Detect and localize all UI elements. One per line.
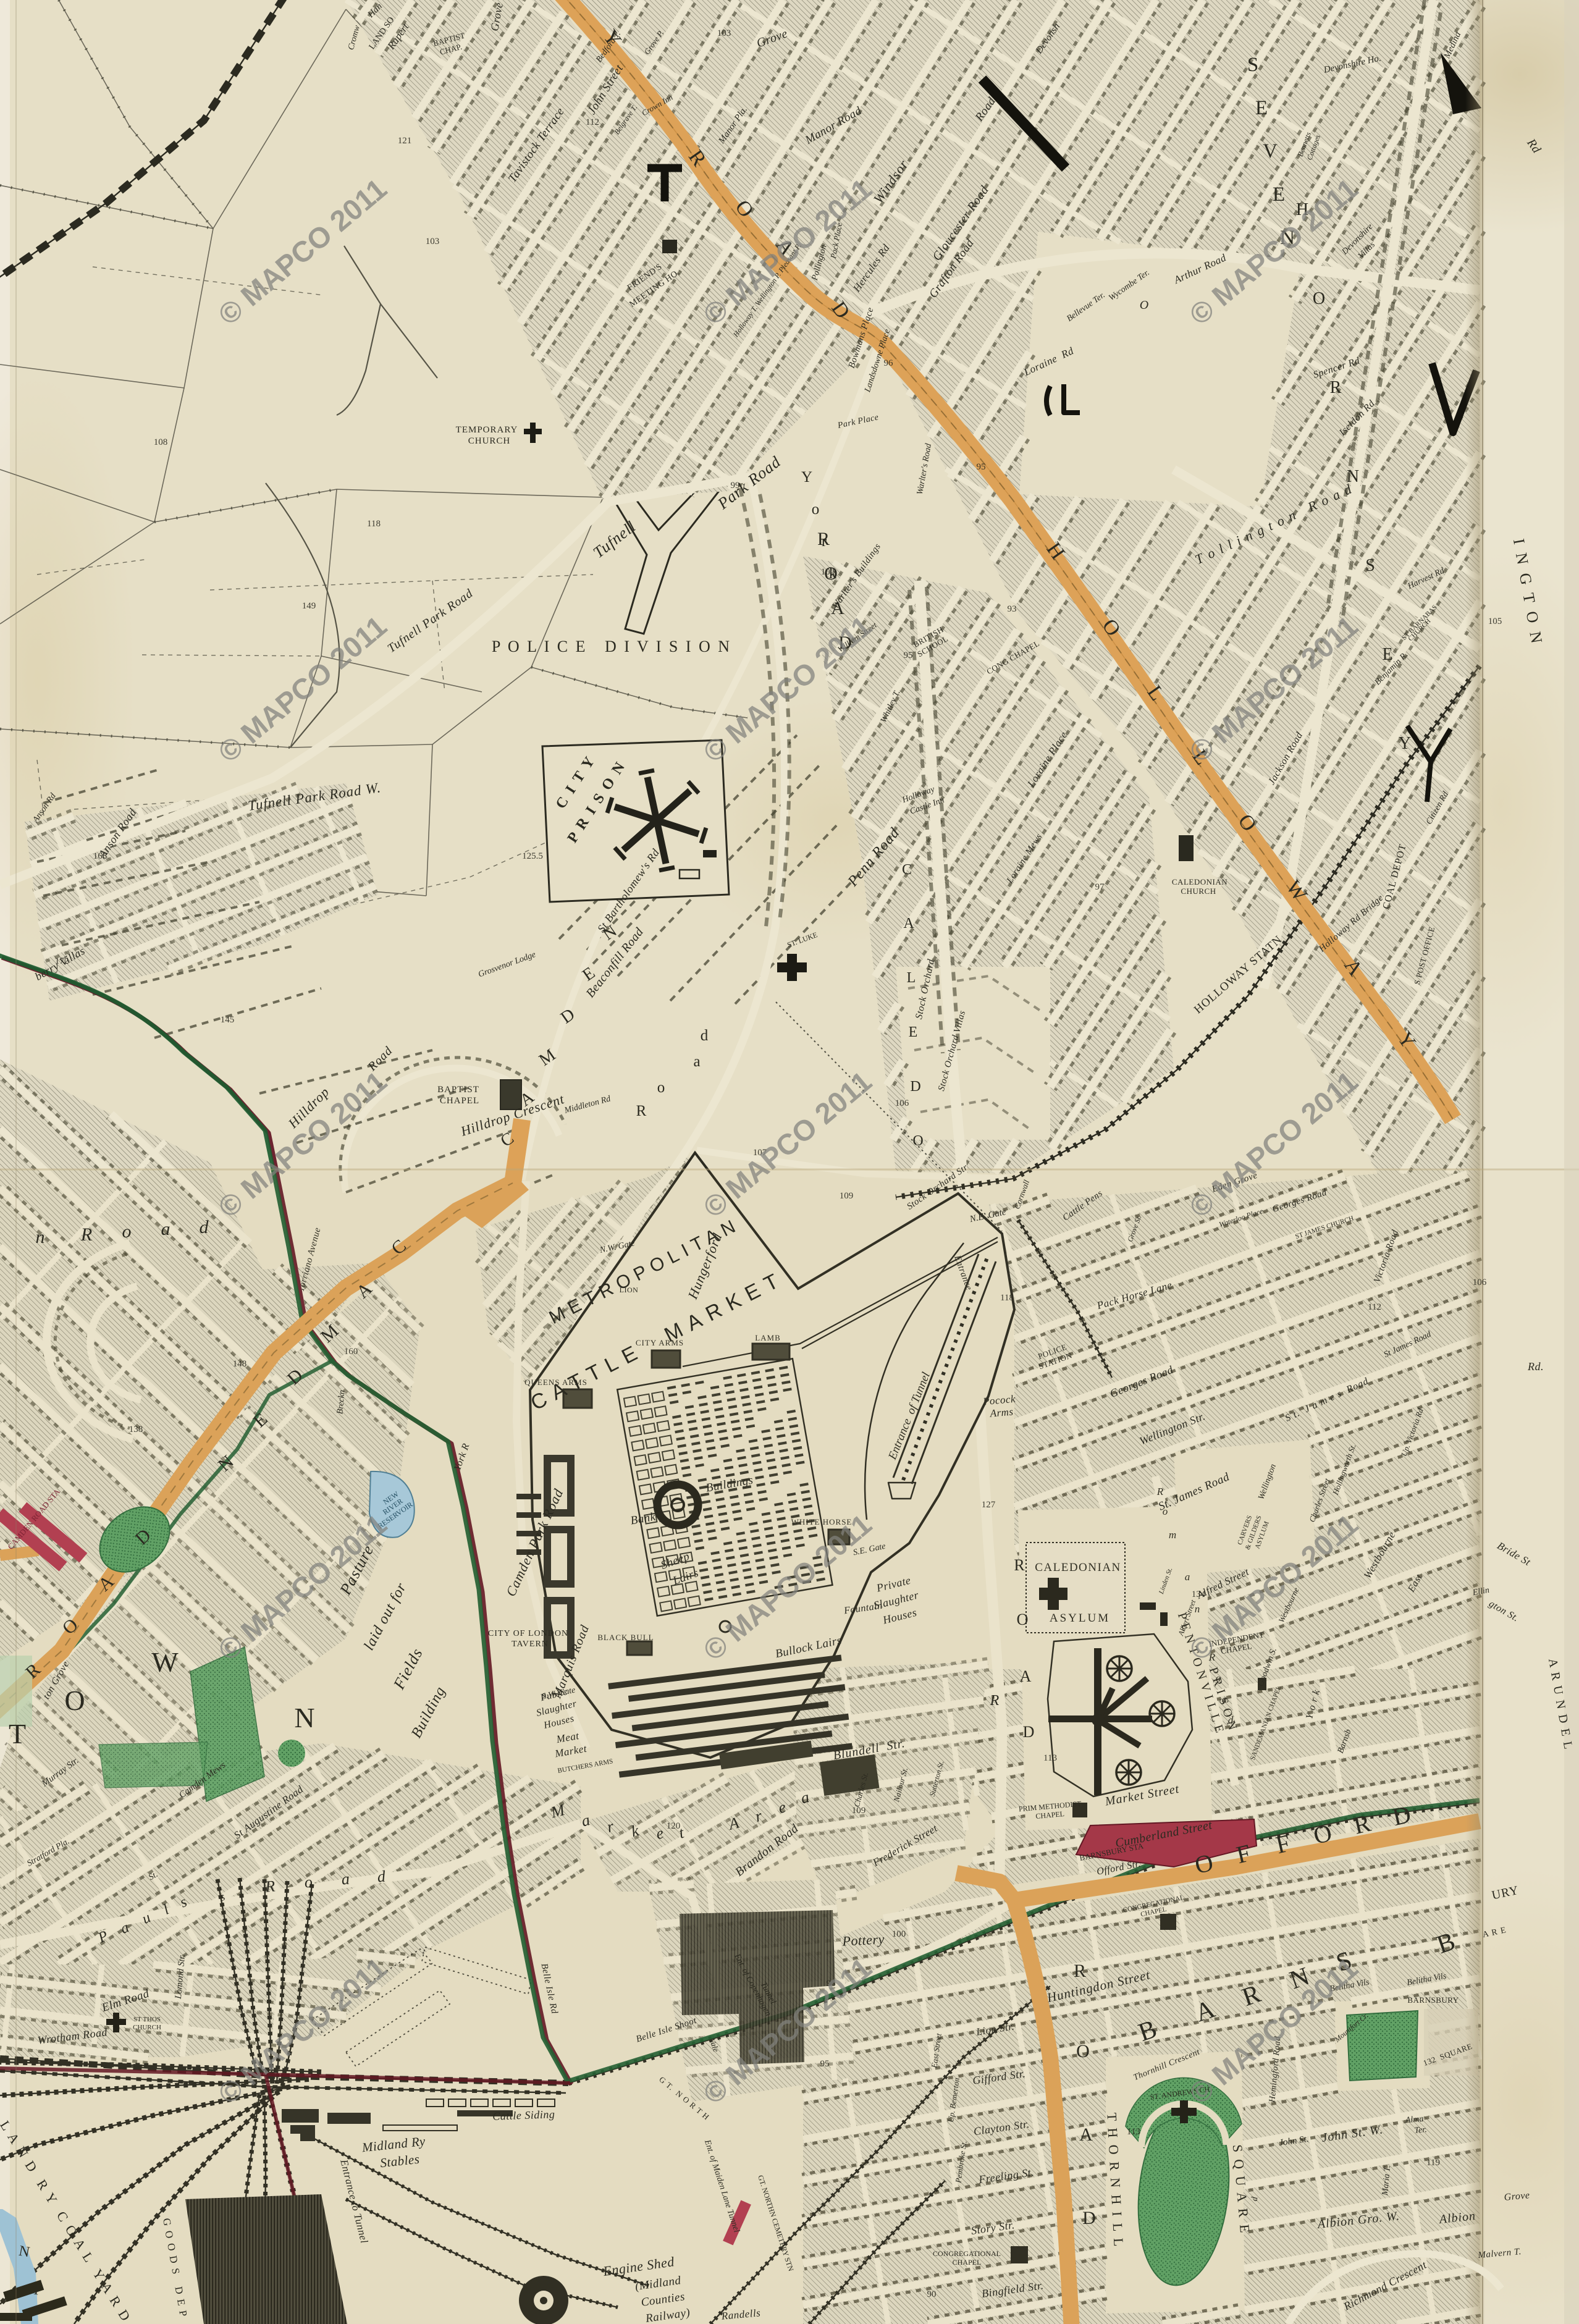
svg-text:CHAPEL: CHAPEL — [953, 2258, 982, 2267]
svg-text:CHAPEL: CHAPEL — [440, 1096, 479, 1106]
svg-text:105: 105 — [1488, 617, 1502, 626]
svg-text:a: a — [161, 1219, 171, 1239]
svg-text:109: 109 — [840, 1191, 854, 1201]
svg-text:D: D — [1023, 1723, 1035, 1741]
svg-text:148: 148 — [233, 1359, 247, 1369]
svg-text:R: R — [990, 1693, 1000, 1709]
svg-text:LION: LION — [620, 1286, 639, 1294]
svg-text:Rd.: Rd. — [1527, 1360, 1544, 1373]
svg-text:D: D — [1082, 2208, 1096, 2228]
svg-text:Y: Y — [1399, 734, 1411, 753]
svg-text:Grove: Grove — [1504, 2190, 1530, 2203]
svg-text:O: O — [912, 1133, 923, 1149]
svg-text:O: O — [1140, 298, 1148, 312]
svg-text:149: 149 — [302, 601, 316, 611]
svg-text:d: d — [200, 1217, 209, 1237]
svg-text:168: 168 — [93, 851, 107, 861]
svg-text:99: 99 — [731, 481, 740, 490]
svg-text:A: A — [1079, 2124, 1093, 2145]
svg-text:BARNSBURY: BARNSBURY — [1407, 1995, 1459, 2005]
svg-text:n: n — [36, 1227, 45, 1247]
svg-text:E: E — [1255, 97, 1268, 119]
svg-text:R: R — [817, 529, 830, 549]
svg-text:121: 121 — [398, 136, 412, 146]
svg-text:93: 93 — [1008, 604, 1017, 614]
svg-text:100: 100 — [892, 1929, 906, 1939]
svg-text:125.5: 125.5 — [522, 851, 543, 861]
svg-text:Y: Y — [801, 469, 812, 486]
svg-text:V: V — [1263, 140, 1278, 162]
svg-text:E: E — [1273, 183, 1285, 206]
svg-text:95: 95 — [977, 462, 986, 472]
svg-text:R: R — [264, 1877, 276, 1895]
svg-text:T: T — [9, 1718, 26, 1749]
svg-text:97: 97 — [1095, 882, 1105, 892]
svg-text:Ter.: Ter. — [1414, 2125, 1427, 2136]
svg-text:CHURCH: CHURCH — [133, 2024, 161, 2031]
svg-text:S: S — [1247, 54, 1258, 76]
svg-text:113: 113 — [1127, 2127, 1140, 2137]
svg-text:o: o — [304, 1873, 313, 1892]
svg-text:O: O — [1313, 289, 1325, 308]
svg-text:109: 109 — [852, 1806, 866, 1816]
svg-text:W: W — [151, 1646, 179, 1678]
svg-text:Cattle Siding: Cattle Siding — [492, 2108, 555, 2123]
svg-text:A: A — [831, 598, 844, 618]
svg-text:o: o — [657, 1079, 665, 1096]
svg-text:TEMPORARY: TEMPORARY — [456, 425, 518, 435]
svg-text:118: 118 — [1000, 1293, 1014, 1303]
svg-text:CHURCH: CHURCH — [1181, 886, 1216, 896]
svg-text:O: O — [64, 1685, 85, 1716]
svg-text:CHURCH: CHURCH — [468, 436, 511, 446]
svg-text:112: 112 — [1368, 1302, 1381, 1312]
svg-text:R: R — [636, 1103, 647, 1119]
svg-text:160: 160 — [344, 1347, 358, 1357]
svg-text:o: o — [812, 501, 820, 518]
svg-text:95: 95 — [904, 650, 913, 660]
svg-text:96: 96 — [884, 358, 894, 368]
svg-text:C: C — [902, 862, 912, 878]
svg-text:BAPTIST: BAPTIST — [437, 1085, 479, 1095]
svg-text:138: 138 — [129, 1425, 143, 1434]
svg-text:134: 134 — [1192, 1589, 1206, 1599]
svg-text:145: 145 — [221, 1015, 235, 1025]
svg-text:172: 172 — [55, 956, 69, 966]
svg-text:L: L — [907, 970, 916, 986]
svg-text:N: N — [294, 1702, 314, 1733]
svg-text:113: 113 — [1043, 1753, 1057, 1763]
svg-text:E: E — [1382, 645, 1392, 664]
svg-text:95: 95 — [820, 2059, 830, 2069]
svg-text:Arms: Arms — [989, 1405, 1014, 1419]
svg-text:120: 120 — [667, 1821, 681, 1831]
svg-text:103: 103 — [717, 28, 731, 38]
svg-text:P O L I C E D I V I S I O N: P O L I C E D I V I S I O N — [492, 638, 731, 655]
svg-text:R: R — [1330, 378, 1342, 397]
svg-text:127: 127 — [982, 1500, 996, 1510]
svg-text:CALEDONIAN: CALEDONIAN — [1172, 877, 1227, 886]
svg-text:R: R — [1014, 1556, 1025, 1574]
svg-text:106: 106 — [895, 1098, 909, 1108]
svg-text:TAVERN: TAVERN — [512, 1640, 549, 1649]
svg-text:90: 90 — [927, 2289, 937, 2299]
svg-text:O: O — [1017, 1610, 1029, 1628]
svg-text:O: O — [824, 563, 838, 584]
svg-text:103: 103 — [426, 237, 440, 246]
svg-text:119: 119 — [1426, 2158, 1440, 2168]
svg-text:112: 112 — [586, 117, 599, 127]
svg-text:S: S — [1365, 556, 1375, 575]
svg-text:E: E — [909, 1024, 918, 1040]
svg-text:A: A — [903, 916, 914, 932]
svg-text:108: 108 — [154, 437, 168, 447]
svg-text:a: a — [341, 1870, 350, 1888]
svg-text:106: 106 — [1473, 1278, 1487, 1287]
svg-text:118: 118 — [367, 519, 381, 529]
svg-text:Alma: Alma — [1404, 2115, 1424, 2126]
svg-text:Pottery: Pottery — [841, 1931, 885, 1949]
svg-text:D: D — [910, 1079, 920, 1095]
svg-text:o: o — [122, 1221, 132, 1242]
svg-text:d: d — [701, 1027, 709, 1044]
svg-text:R: R — [1074, 1961, 1086, 1981]
svg-text:O: O — [1076, 2041, 1090, 2061]
svg-text:a: a — [693, 1053, 700, 1070]
svg-text:CITY OF LONDON: CITY OF LONDON — [488, 1629, 568, 1638]
svg-text:A: A — [1020, 1667, 1032, 1685]
svg-text:R: R — [80, 1224, 92, 1245]
svg-text:CONGREGATIONAL: CONGREGATIONAL — [933, 2249, 1001, 2258]
